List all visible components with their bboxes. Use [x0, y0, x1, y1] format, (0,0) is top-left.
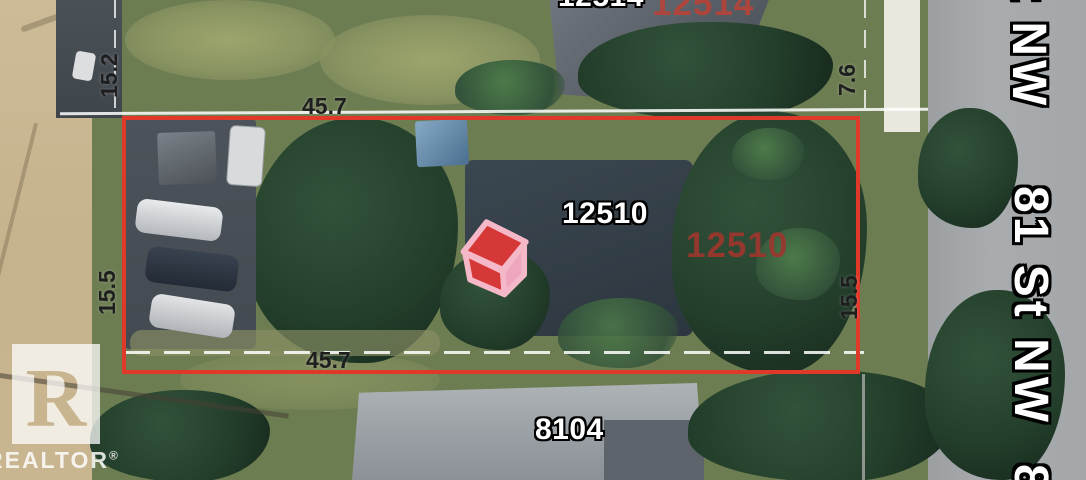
tree-cluster [578, 22, 833, 120]
listing-address-north: 12514 [652, 0, 754, 24]
street-label-bottom-partial: 8 [1003, 464, 1058, 480]
aerial-map: 12514 12514 12510 12510 8104 45.7 45.7 1… [0, 0, 1086, 480]
realtor-wordmark: REALTOR® [0, 447, 120, 474]
fence-line [862, 374, 865, 480]
address-label-south: 8104 [535, 413, 604, 447]
dimension-upper-left: 15.2 [96, 53, 123, 98]
sidewalk [884, 0, 920, 132]
house-marker-icon [452, 212, 534, 298]
realtor-logo-watermark: R [12, 344, 100, 444]
tree-cluster [688, 370, 953, 480]
survey-line-right [864, 0, 866, 110]
listing-address-subject: 12510 [686, 226, 788, 266]
registered-mark: ® [109, 448, 120, 462]
tree [455, 60, 565, 115]
address-label-subject: 12510 [562, 197, 648, 231]
dimension-top: 45.7 [302, 93, 347, 120]
dimension-left: 15.5 [94, 270, 121, 315]
dimension-upper-right: 7.6 [834, 64, 861, 96]
lawn-patch [125, 0, 335, 80]
street-label-main: 81 St NW [1003, 186, 1058, 426]
address-label-clipped: 12514 [558, 0, 644, 14]
dimension-right: 15.5 [836, 275, 863, 320]
dimension-bottom: 45.7 [306, 347, 351, 374]
realtor-wordmark-text: REALTOR [0, 447, 109, 473]
street-label-top: t NW [1001, 0, 1056, 109]
